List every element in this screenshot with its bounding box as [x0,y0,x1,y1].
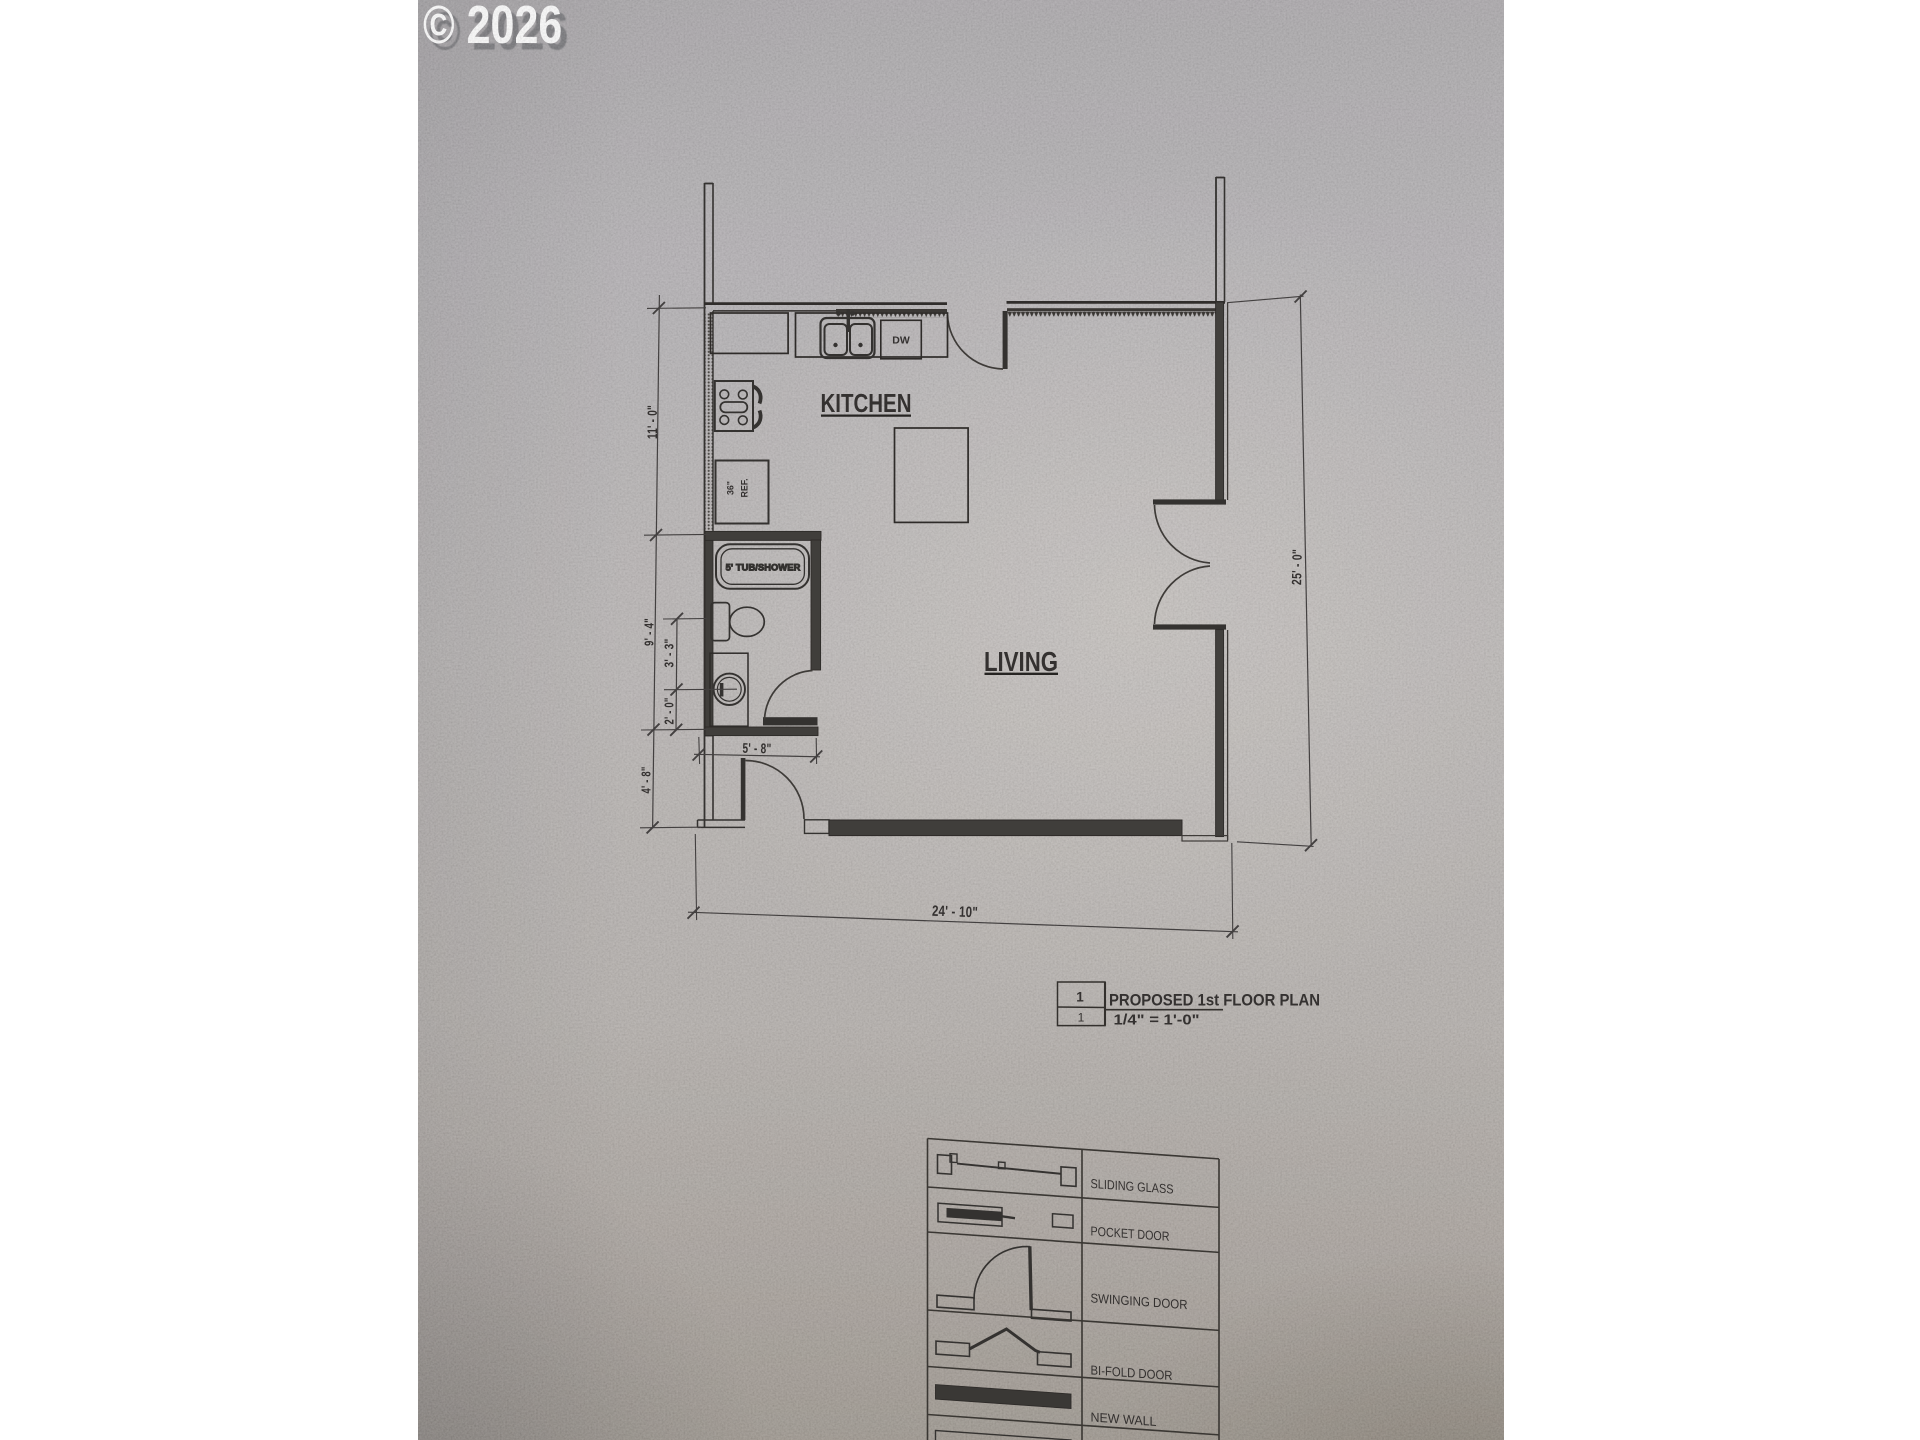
svg-text:36": 36" [726,481,736,495]
svg-text:5' TUB/SHOWER: 5' TUB/SHOWER [726,563,801,573]
svg-text:LIVING: LIVING [984,646,1058,677]
svg-text:2' - 0": 2' - 0" [662,698,677,725]
svg-text:4' - 8": 4' - 8" [639,767,654,794]
svg-text:9' - 4": 9' - 4" [642,618,657,646]
svg-text:3' - 3": 3' - 3" [662,639,677,668]
svg-text:5' - 8": 5' - 8" [742,740,771,757]
svg-text:REF.: REF. [740,478,750,497]
svg-text:PROPOSED 1st FLOOR PLAN: PROPOSED 1st FLOOR PLAN [1109,991,1320,1010]
svg-text:1: 1 [1076,990,1084,1005]
svg-text:11' - 0": 11' - 0" [645,405,660,439]
svg-text:25' - 0": 25' - 0" [1289,549,1305,585]
svg-text:DW: DW [892,335,910,347]
svg-text:1: 1 [1078,1011,1085,1025]
svg-text:1/4" = 1'-0": 1/4" = 1'-0" [1114,1012,1200,1029]
svg-text:KITCHEN: KITCHEN [821,388,912,418]
svg-text:24' - 10": 24' - 10" [932,903,979,922]
